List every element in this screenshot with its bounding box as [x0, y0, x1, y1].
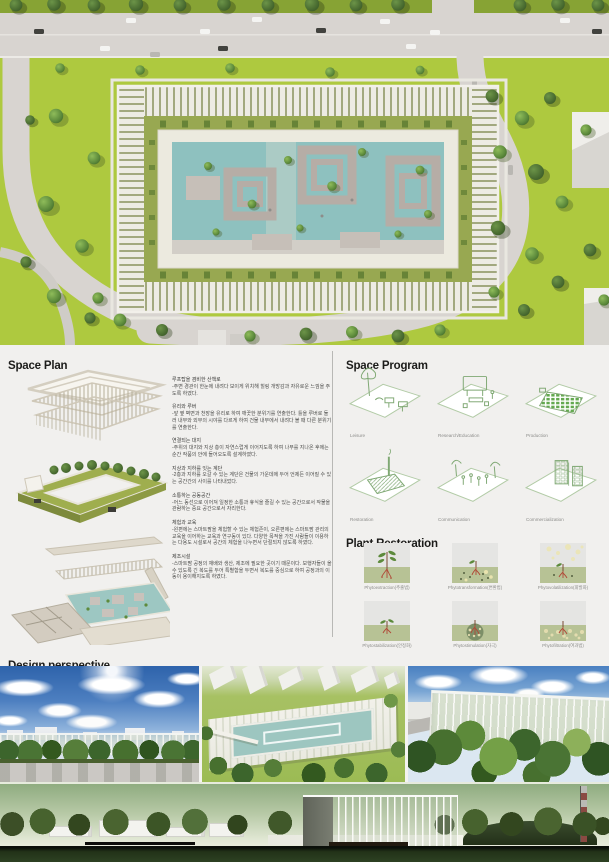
plant-tile-phytostimulation: Phytostimulation(자극): [432, 601, 518, 649]
louver-building-elevation: [303, 795, 458, 847]
description-paragraph: 체험과 교육-왼편에는 스마트팜을 체험할 수 있는 체험존이, 오른편에는 스…: [172, 520, 332, 547]
foreground-trees: [408, 666, 609, 782]
program-label: Commercialization: [526, 517, 606, 522]
phytovolatilization-glyph: [540, 543, 586, 583]
aerial-site-plan: [0, 0, 609, 345]
description-paragraph: 제조시설-스마트팜 공정의 재배와 생산, 제조에 필요한 곳이기 때문이다. …: [172, 554, 332, 581]
analysis-panel: Space Plan: [0, 345, 609, 648]
axon-roof-structure-diagram: [10, 367, 168, 445]
shadow-band: [85, 842, 195, 845]
aerial-site-render: [0, 0, 609, 345]
main-building-roof: [112, 80, 506, 318]
ground-strip: [0, 846, 609, 862]
commercialization-sketch: [520, 447, 600, 511]
description-paragraph: 유리와 루버-앞 옆 벽면과 천장을 유리로 하여 깨끗한 분위기를 연출한다.…: [172, 404, 332, 431]
description-paragraph: 루프탑을 겸비한 산책로-주변 경관이 한눈에 내려다 보이게 위치해 힐링 개…: [172, 377, 332, 397]
program-label: Restoration: [350, 517, 430, 522]
service-core: [303, 797, 333, 847]
perspective-garden-eye-level-view: [408, 666, 609, 782]
plant-tile-phytovolatilization: Phytovolatilization(휘발화): [520, 543, 606, 591]
plant-label: Phytovolatilization(휘발화): [520, 585, 606, 591]
program-tile-restoration: Restoration: [344, 447, 430, 522]
site-elevation-render: [0, 784, 609, 862]
perspective-aerial-courtyard-view: [202, 666, 405, 782]
communication-sketch: [432, 447, 512, 511]
program-label: Research/Education: [438, 433, 518, 438]
production-sketch: [520, 363, 600, 427]
phytostimulation-glyph: [452, 601, 498, 641]
program-label: Leisure: [350, 433, 430, 438]
description-paragraph: 연결되는 대지-주위의 대지와 지상 층이 자연스럽게 이어지도록 하여 나무를…: [172, 438, 332, 458]
plant-tile-phytoextraction: Phytoextraction(추출법): [344, 543, 430, 591]
design-perspective-header: Design perspective: [0, 648, 609, 666]
program-tile-research: Research/Education: [432, 363, 518, 438]
program-tile-communication: Communication: [432, 447, 518, 522]
axon-frame-landscape-diagram: [8, 449, 168, 533]
phytostabilization-glyph: [364, 601, 410, 641]
restoration-sketch: [344, 447, 424, 511]
program-label: Communication: [438, 517, 518, 522]
program-tile-commercialization: Commercialization: [520, 447, 606, 522]
description-paragraph: 소통하는 공동공간-어느 동선으로 이어져 일정한 소통과 휴식을 즐길 수 있…: [172, 493, 332, 513]
phytofiltration-glyph: [540, 601, 586, 641]
space-plan-descriptions: 루프탑을 겸비한 산책로-주변 경관이 한눈에 내려다 보이게 위치해 힐링 개…: [172, 377, 332, 588]
research-sketch: [432, 363, 512, 427]
plant-label: Phytoextraction(추출법): [344, 585, 430, 591]
foreground-road: [0, 763, 199, 782]
plant-label: Phytotransformation(변환법): [432, 585, 518, 591]
plant-tile-phytostabilization: Phytostabilization(안정화): [344, 601, 430, 649]
program-label: Production: [526, 433, 606, 438]
phytotransformation-glyph: [452, 543, 498, 583]
architecture-presentation-board: Space Plan: [0, 0, 609, 862]
axon-exploded-plan-diagram: [6, 535, 170, 645]
plant-tile-phytotransformation: Phytotransformation(변환법): [432, 543, 518, 591]
space-program-grid: Leisure Research/Education: [344, 363, 608, 522]
program-tile-production: Production: [520, 363, 606, 438]
program-tile-leisure: Leisure: [344, 363, 430, 438]
surrounding-trees: [202, 666, 405, 782]
plant-restoration-grid: Phytoextraction(추출법) Phytotransformation…: [344, 543, 608, 649]
description-paragraph: 지상과 지하를 잇는 계단-2층과 지하를 오갈 수 있는 계단은 건물의 가운…: [172, 466, 332, 486]
plant-tile-phytofiltration: Phytofiltration(여과법): [520, 601, 606, 649]
design-perspective-row: [0, 666, 609, 782]
section-divider: [332, 351, 333, 637]
perspective-street-level-view: [0, 666, 199, 782]
phytoextraction-glyph: [364, 543, 410, 583]
leisure-sketch: [344, 363, 424, 427]
